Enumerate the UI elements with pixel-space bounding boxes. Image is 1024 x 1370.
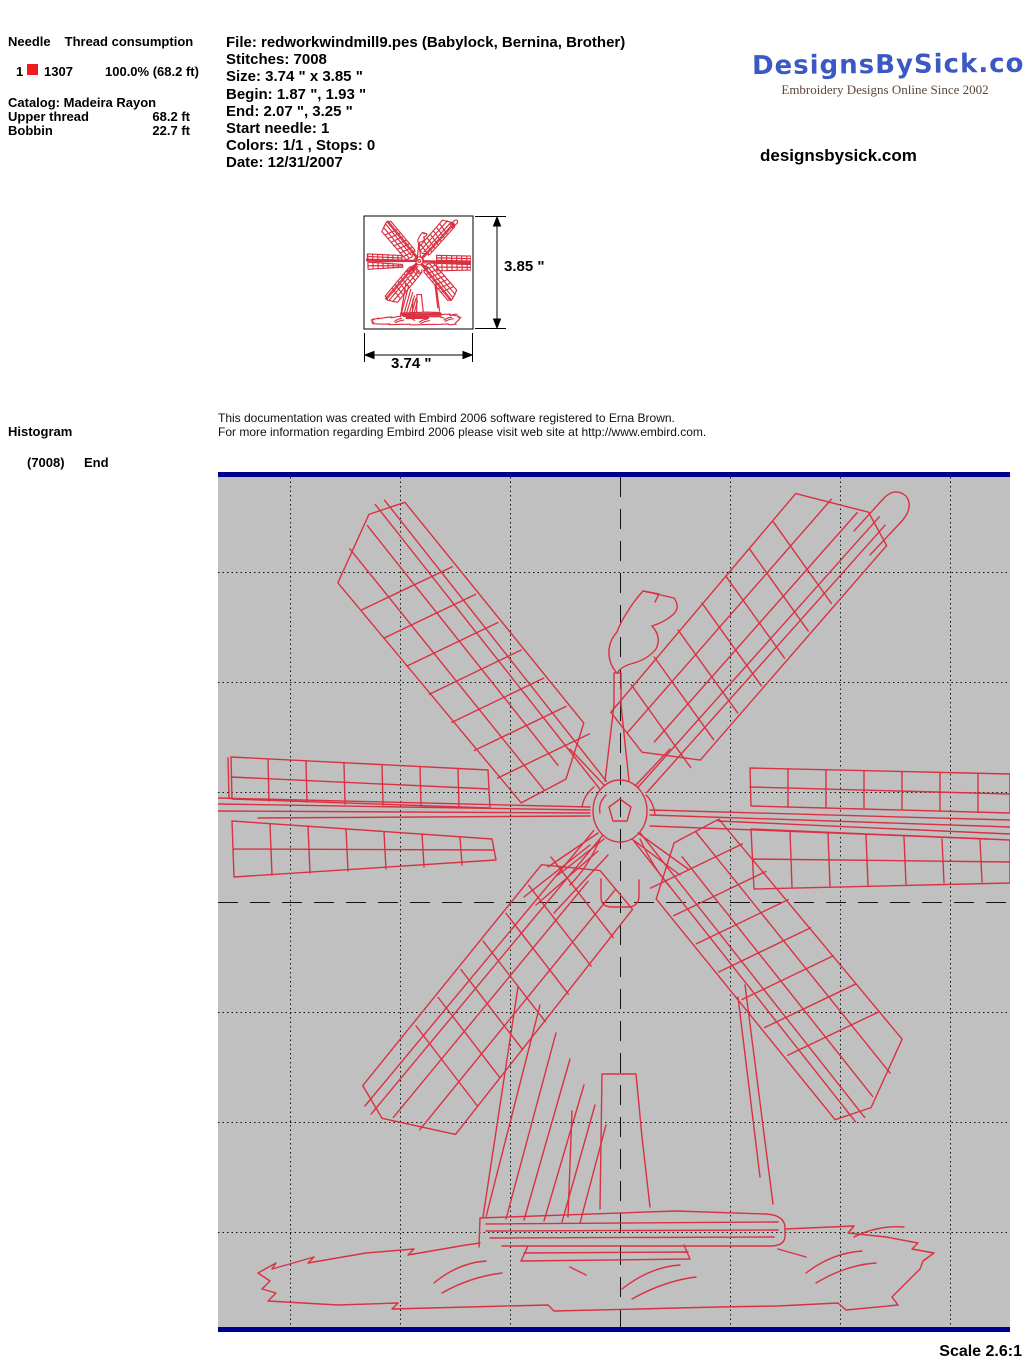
brand-tagline: Embroidery Designs Online Since 2002	[752, 82, 1018, 98]
windmill-stitch-art	[218, 477, 1010, 1311]
upper-thread-label: Upper thread	[8, 109, 89, 124]
thread-color-code: 1307	[44, 64, 73, 79]
needle-number: 1	[16, 64, 23, 79]
colors-line: Colors: 1/1 , Stops: 0	[226, 137, 756, 154]
upper-thread-value: 68.2 ft	[152, 109, 190, 124]
brand-website: designsbysick.com	[760, 146, 917, 166]
end-line: End: 2.07 ", 3.25 "	[226, 103, 756, 120]
file-name-line: File: redworkwindmill9.pes (Babylock, Be…	[226, 34, 756, 51]
design-preview-thumbnail	[360, 210, 560, 380]
preview-stitch-art	[366, 216, 471, 325]
embird-note-line1: This documentation was created with Embi…	[218, 412, 706, 426]
histogram-title: Histogram	[8, 424, 72, 439]
scale-label: Scale 2.6:1	[880, 1343, 1022, 1361]
thread-catalog: Catalog: Madeira Rayon	[8, 95, 156, 110]
design-canvas	[218, 477, 1010, 1327]
date-line: Date: 12/31/2007	[226, 154, 756, 171]
center-axis-lines	[218, 477, 1010, 1327]
design-canvas-svg	[218, 477, 1010, 1327]
embird-note: This documentation was created with Embi…	[218, 412, 706, 439]
file-info-panel: File: redworkwindmill9.pes (Babylock, Be…	[226, 34, 756, 172]
embird-note-line2: For more information regarding Embird 20…	[218, 426, 706, 440]
upper-thread-row: Upper thread 68.2 ft	[8, 109, 190, 124]
bobbin-label: Bobbin	[8, 123, 53, 138]
size-line: Size: 3.74 " x 3.85 "	[226, 68, 756, 85]
thread-usage: 100.0% (68.2 ft)	[105, 64, 199, 79]
start-needle-line: Start needle: 1	[226, 120, 756, 137]
width-dimension-label: 3.74 "	[391, 355, 431, 372]
bobbin-value: 22.7 ft	[152, 123, 190, 138]
consumption-column-header: Thread consumption	[65, 34, 194, 49]
height-dimension-label: 3.85 "	[504, 258, 544, 275]
stitches-line: Stitches: 7008	[226, 51, 756, 68]
histogram-end-label: End	[84, 455, 109, 470]
bottom-border-bar	[218, 1327, 1010, 1332]
brand-logo: DesignsBySick.com	[752, 49, 1018, 81]
embroidery-doc-page: NeedleThread consumption 1 1307 100.0% (…	[0, 0, 1024, 1370]
design-area	[218, 472, 1010, 1332]
thread-consumption-header: NeedleThread consumption	[8, 34, 207, 49]
begin-line: Begin: 1.87 ", 1.93 "	[226, 86, 756, 103]
histogram-stitch-count: (7008)	[27, 455, 65, 470]
needle-column-header: Needle	[8, 34, 51, 49]
thread-color-swatch	[27, 64, 38, 75]
bobbin-row: Bobbin 22.7 ft	[8, 123, 190, 138]
grid-lines	[218, 477, 1010, 1327]
height-dimension-arrow	[475, 217, 506, 329]
